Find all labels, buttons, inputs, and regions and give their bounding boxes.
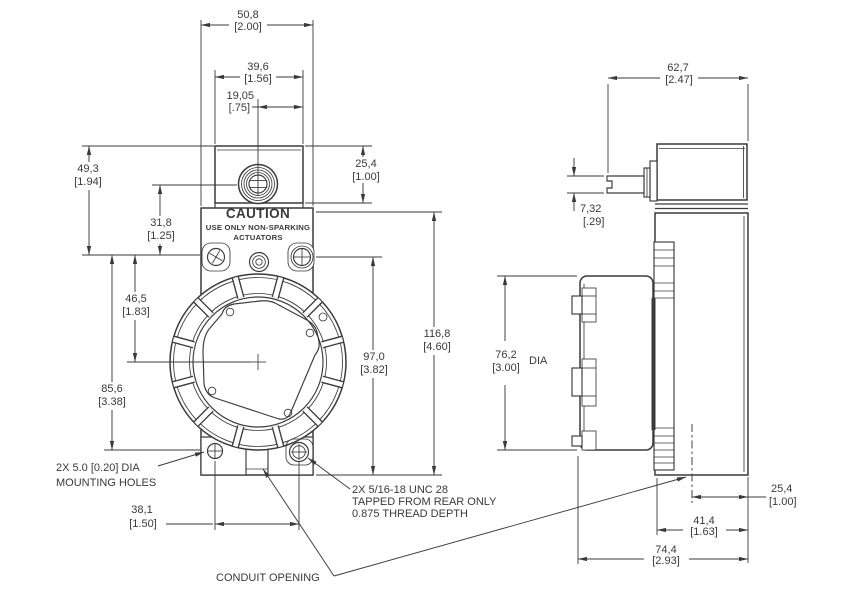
side-head — [657, 144, 747, 200]
technical-drawing-page: CAUTION USE ONLY NON-SPARKING ACTUATORS — [0, 0, 868, 600]
dim-mm: 49,3 — [77, 163, 98, 175]
actuator-shaft — [607, 176, 644, 193]
note-line: 2X 5.0 [0.20] DIA — [56, 462, 140, 474]
limit-switch-dimension-drawing: CAUTION USE ONLY NON-SPARKING ACTUATORS — [0, 0, 868, 600]
dim-in: [1.56] — [244, 73, 272, 85]
dim-mm: 38,1 — [131, 504, 152, 516]
dim-side-body-depth: 41,4 [1.63] — [657, 478, 748, 538]
note-mounting-holes: 2X 5.0 [0.20] DIA MOUNTING HOLES — [56, 452, 204, 489]
dim-front-head-height: 25,4 [1.00] — [305, 146, 380, 203]
dim-in: [1.00] — [769, 496, 797, 508]
dim-mm: 19,05 — [226, 90, 254, 102]
note-line: 0.875 THREAD DEPTH — [352, 508, 468, 520]
front-head — [215, 146, 303, 208]
dim-in: [4.60] — [423, 341, 451, 353]
caution-line2: ACTUATORS — [233, 233, 282, 242]
dim-in: [3.00] — [492, 362, 520, 374]
side-view — [572, 144, 748, 503]
dim-in: [2.00] — [234, 21, 262, 33]
note-line: TAPPED FROM REAR ONLY — [352, 496, 497, 508]
note-line: CONDUIT OPENING — [216, 572, 320, 584]
dim-mm: 25,4 — [355, 158, 376, 170]
dim-in: [1.25] — [147, 230, 175, 242]
dim-in: [1.83] — [122, 306, 150, 318]
dim-mm: 62,7 — [667, 62, 688, 74]
dim-in: [1.94] — [74, 176, 102, 188]
dim-mm: 25,4 — [771, 483, 792, 495]
note-conduit-opening: CONDUIT OPENING — [216, 469, 686, 584]
dim-front-top-to-mount-face: 49,3 [1.94] — [74, 146, 214, 255]
side-shaft — [607, 161, 657, 201]
note-line: MOUNTING HOLES — [56, 477, 156, 489]
side-cover — [572, 276, 653, 450]
dim-mm: 39,6 — [247, 61, 268, 73]
dim-in: [1.00] — [352, 171, 380, 183]
caution-line1: USE ONLY NON-SPARKING — [206, 223, 310, 232]
dim-in: [3.38] — [98, 396, 126, 408]
dim-mm: 116,8 — [424, 328, 451, 340]
dim-mm: 97,0 — [363, 351, 384, 363]
caution-title: CAUTION — [226, 206, 290, 221]
dim-in: [.29] — [583, 216, 604, 228]
dim-mm: 50,8 — [237, 9, 258, 21]
dim-side-shaft-thickness: 7,32 [.29] — [567, 158, 604, 228]
dim-in: [3.82] — [360, 364, 388, 376]
dim-in: [2.93] — [652, 555, 680, 567]
dim-mm: 46,5 — [125, 293, 146, 305]
dim-in: [.75] — [229, 102, 250, 114]
dim-side-cover-diameter: 76,2 [3.00] DIA — [492, 276, 577, 450]
dim-mm: 31,8 — [150, 217, 171, 229]
dim-mm: 7,32 — [580, 203, 601, 215]
dim-in: [1.63] — [690, 526, 718, 538]
side-cover-flange — [652, 242, 675, 470]
dim-mm: 76,2 — [495, 349, 516, 361]
note-line: 2X 5/16-18 UNC 28 — [352, 484, 448, 496]
note-tapped-holes: 2X 5/16-18 UNC 28 TAPPED FROM REAR ONLY … — [308, 458, 497, 520]
dim-in: [2.47] — [665, 74, 693, 86]
dim-mm: 85,6 — [101, 383, 122, 395]
dim-suffix: DIA — [529, 355, 548, 367]
dim-in: [1.50] — [129, 518, 157, 530]
